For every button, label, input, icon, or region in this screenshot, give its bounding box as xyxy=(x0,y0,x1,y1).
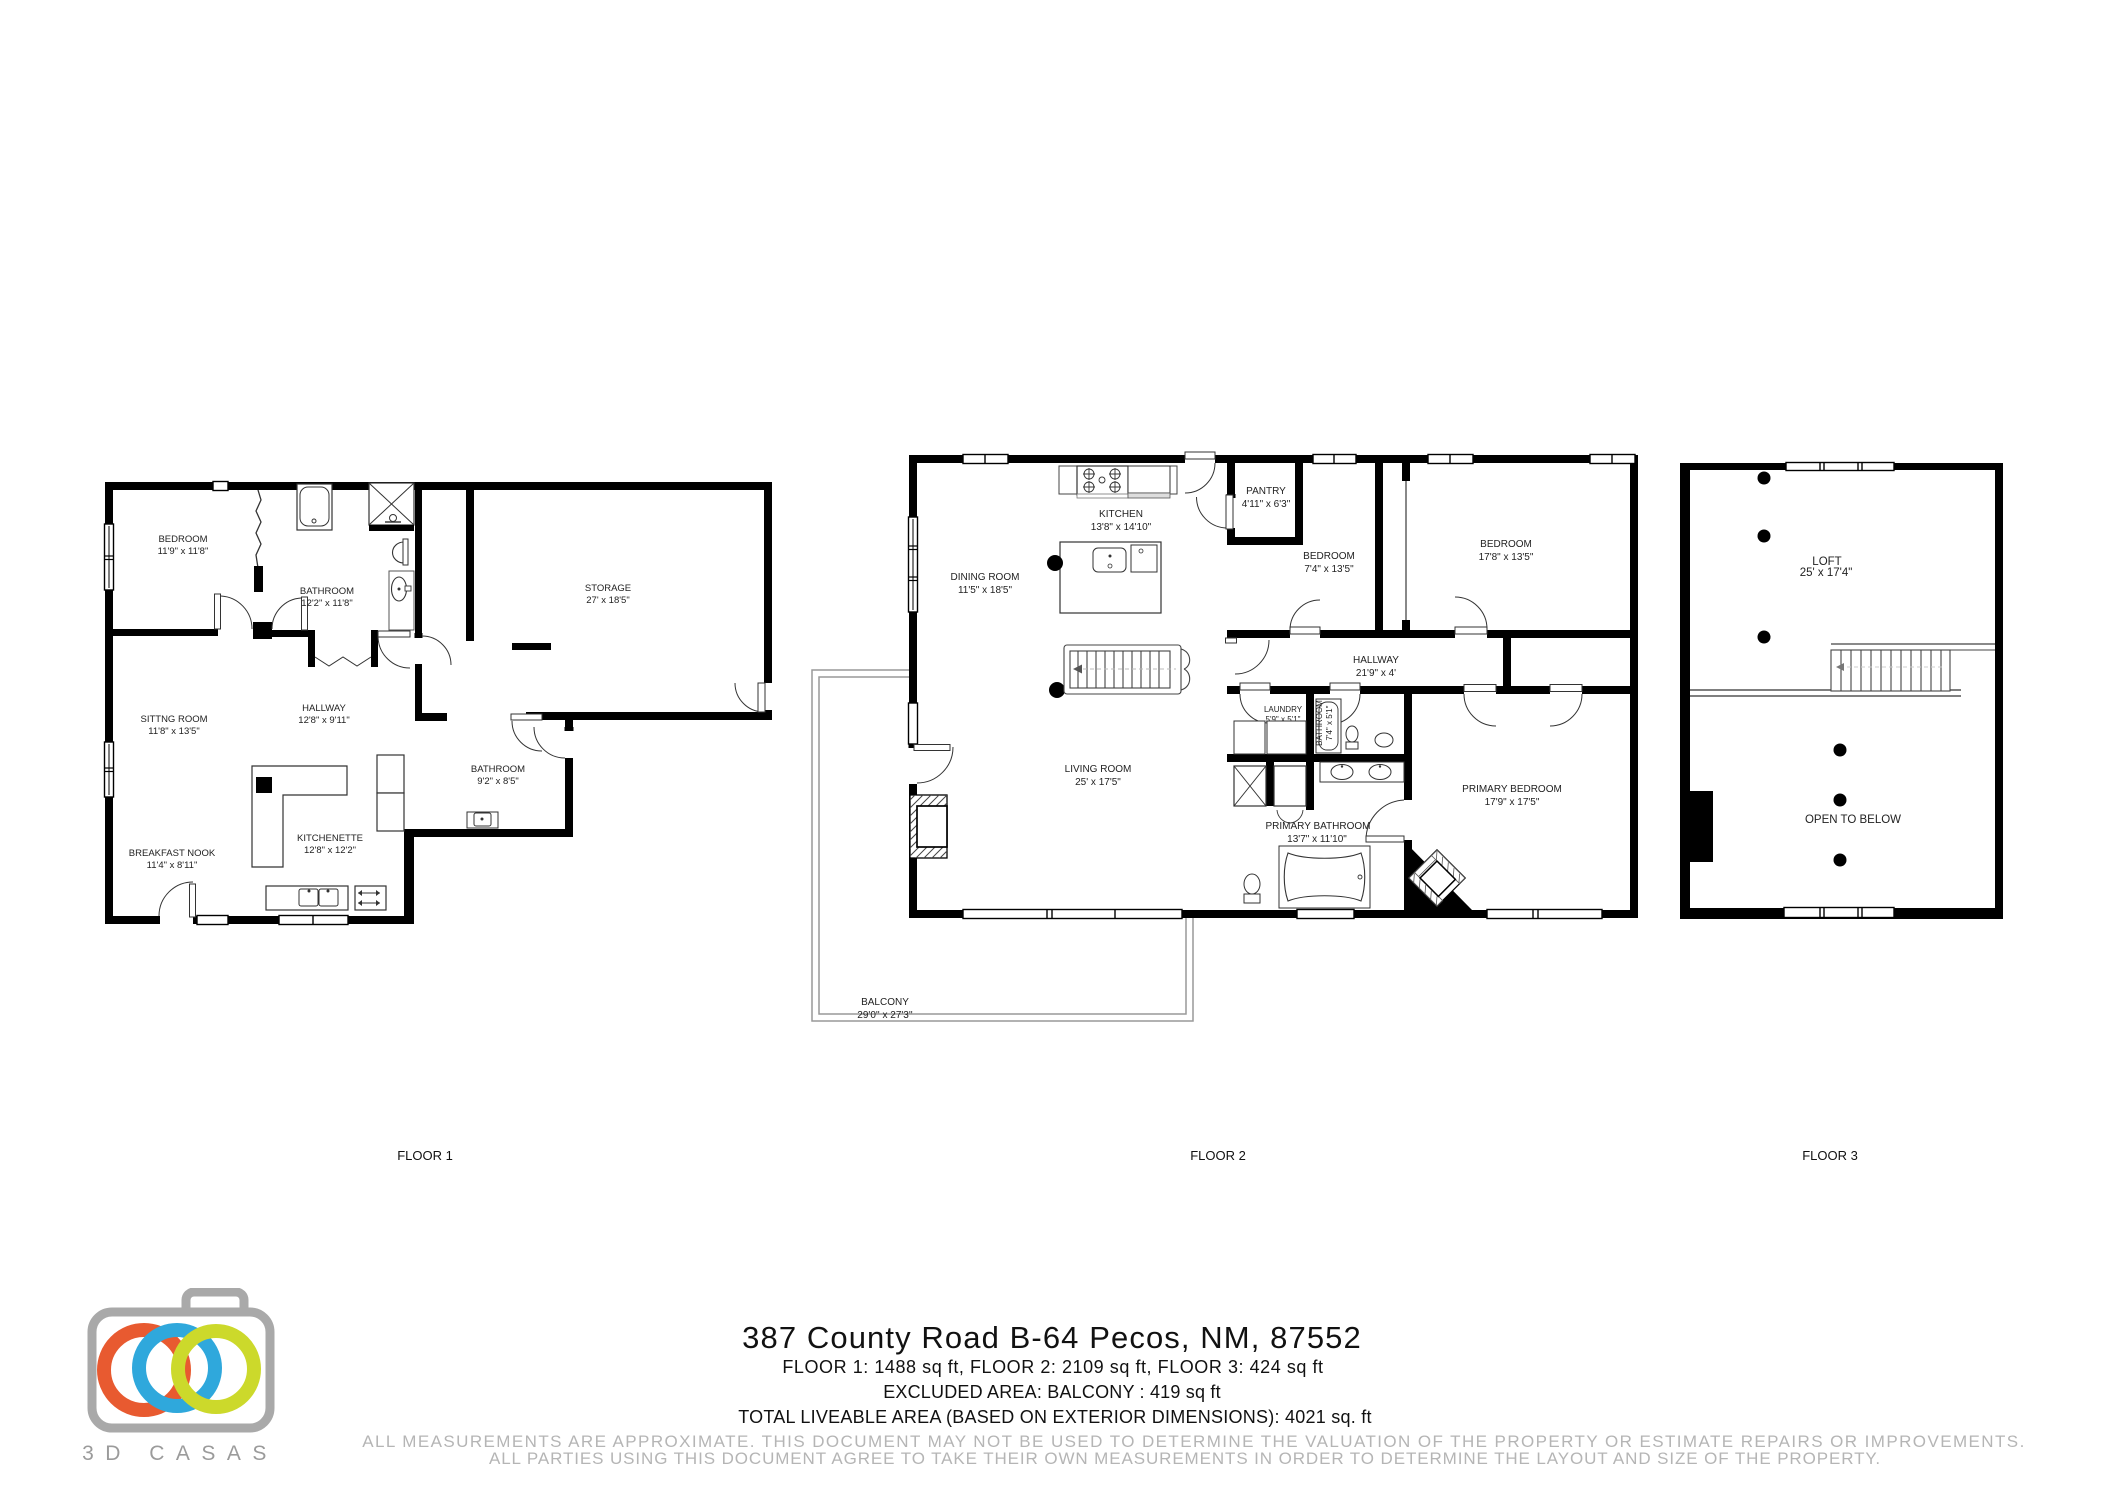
svg-text:13'8" x 14'10": 13'8" x 14'10" xyxy=(1091,522,1152,533)
svg-text:27' x 18'5": 27' x 18'5" xyxy=(586,595,629,606)
svg-text:HALLWAY: HALLWAY xyxy=(1353,655,1399,666)
svg-text:7'4" x 5'1": 7'4" x 5'1" xyxy=(1325,705,1334,740)
svg-text:BALCONY: BALCONY xyxy=(861,997,909,1008)
svg-text:11'4" x 8'11": 11'4" x 8'11" xyxy=(147,860,198,871)
svg-text:PRIMARY BATHROOM: PRIMARY BATHROOM xyxy=(1265,821,1370,832)
svg-text:BEDROOM: BEDROOM xyxy=(1480,539,1532,550)
svg-text:KITCHENETTE: KITCHENETTE xyxy=(297,833,363,844)
svg-text:12'8" x 12'2": 12'8" x 12'2" xyxy=(304,845,356,856)
svg-text:LIVING ROOM: LIVING ROOM xyxy=(1065,764,1132,775)
svg-text:3D CASAS: 3D CASAS xyxy=(82,1442,278,1465)
svg-text:PANTRY: PANTRY xyxy=(1246,486,1286,497)
svg-text:BREAKFAST NOOK: BREAKFAST NOOK xyxy=(129,848,216,859)
svg-text:BATHROOM: BATHROOM xyxy=(1315,700,1324,746)
svg-text:PRIMARY BEDROOM: PRIMARY BEDROOM xyxy=(1462,784,1562,795)
svg-text:11'9" x 11'8": 11'9" x 11'8" xyxy=(158,546,209,557)
svg-text:25' x 17'5": 25' x 17'5" xyxy=(1075,777,1121,788)
svg-text:DINING ROOM: DINING ROOM xyxy=(951,572,1020,583)
svg-text:13'7" x 11'10": 13'7" x 11'10" xyxy=(1287,834,1347,845)
svg-text:17'9" x 17'5": 17'9" x 17'5" xyxy=(1485,797,1540,808)
svg-text:BEDROOM: BEDROOM xyxy=(158,534,207,545)
svg-text:BEDROOM: BEDROOM xyxy=(1303,551,1355,562)
svg-text:STORAGE: STORAGE xyxy=(585,583,631,594)
svg-text:9'2" x 8'5": 9'2" x 8'5" xyxy=(477,776,519,787)
svg-text:12'2" x 11'8": 12'2" x 11'8" xyxy=(301,598,352,609)
svg-text:11'8" x 13'5": 11'8" x 13'5" xyxy=(148,726,199,737)
svg-text:HALLWAY: HALLWAY xyxy=(302,703,346,714)
svg-text:OPEN TO BELOW: OPEN TO BELOW xyxy=(1805,814,1901,826)
svg-text:12'8" x 9'11": 12'8" x 9'11" xyxy=(298,715,349,726)
svg-text:SITTNG ROOM: SITTNG ROOM xyxy=(140,714,207,725)
svg-text:21'9" x 4': 21'9" x 4' xyxy=(1356,668,1396,679)
svg-text:7'4" x 13'5": 7'4" x 13'5" xyxy=(1304,564,1354,575)
svg-text:BATHROOM: BATHROOM xyxy=(471,764,525,775)
svg-text:29'0'' x 27'3'': 29'0'' x 27'3'' xyxy=(857,1010,912,1021)
svg-text:BATHROOM: BATHROOM xyxy=(300,586,354,597)
svg-text:17'8" x 13'5": 17'8" x 13'5" xyxy=(1479,552,1534,563)
svg-text:4'11" x 6'3": 4'11" x 6'3" xyxy=(1242,499,1291,510)
svg-text:KITCHEN: KITCHEN xyxy=(1099,509,1143,520)
svg-text:LAUNDRY: LAUNDRY xyxy=(1264,705,1303,714)
svg-text:11'5" x 18'5": 11'5" x 18'5" xyxy=(958,585,1013,596)
svg-text:25' x 17'4": 25' x 17'4" xyxy=(1800,567,1853,579)
